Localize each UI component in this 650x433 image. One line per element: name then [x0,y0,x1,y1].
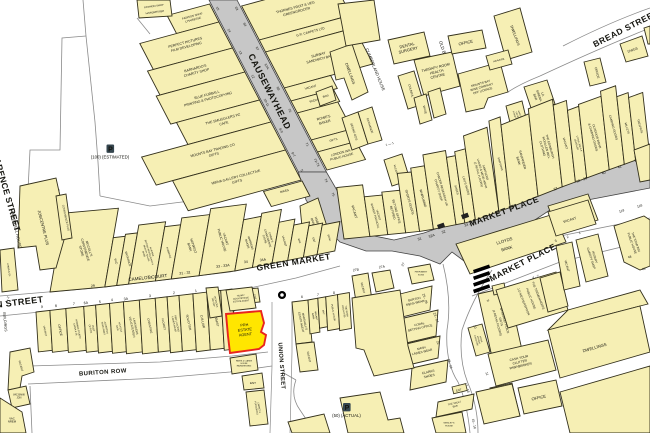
svg-text:6: 6 [301,295,303,299]
svg-text:9: 9 [41,305,43,309]
svg-text:4: 4 [111,298,113,302]
svg-text:2: 2 [173,291,175,295]
svg-text:34: 34 [244,260,248,264]
svg-text:(100) (ESTIMATED): (100) (ESTIMATED) [91,155,130,160]
svg-text:7: 7 [73,302,75,306]
svg-text:8: 8 [55,304,57,308]
svg-text:ENT: ENT [250,381,256,385]
svg-text:P: P [108,146,113,153]
svg-text:5: 5 [99,300,101,304]
svg-text:8: 8 [333,291,335,295]
svg-text:7: 7 [317,293,319,297]
svg-text:(50) (ACTUAL): (50) (ACTUAL) [332,413,361,418]
svg-text:3: 3 [149,294,151,298]
svg-text:P: P [345,405,350,412]
svg-text:1: 1 [195,289,197,293]
svg-text:29: 29 [91,284,95,288]
